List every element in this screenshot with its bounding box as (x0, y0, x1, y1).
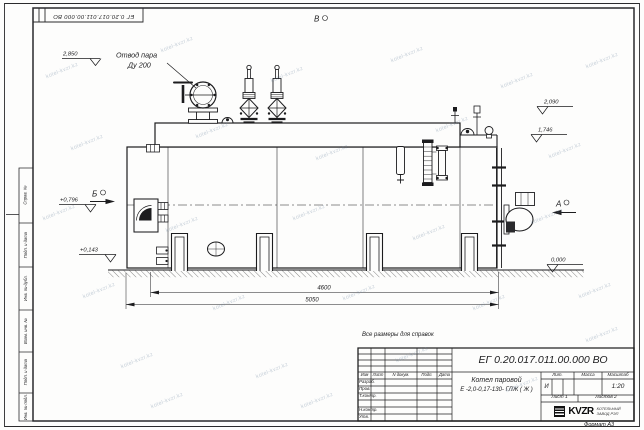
watermark-text: kotel-kvzr.kz (530, 208, 564, 226)
watermark-text: kotel-kvzr.kz (212, 294, 246, 312)
watermark-text: kotel-kvzr.kz (150, 392, 184, 410)
watermark-text: kotel-kvzr.kz (342, 284, 376, 302)
watermark-text: kotel-kvzr.kz (578, 282, 612, 300)
watermark-text: kotel-kvzr.kz (45, 62, 79, 80)
watermark-text: kotel-kvzr.kz (255, 362, 289, 380)
watermark-text: kotel-kvzr.kz (120, 352, 154, 370)
watermark-text: kotel-kvzr.kz (435, 116, 469, 134)
watermark-text: kotel-kvzr.kz (505, 376, 539, 394)
watermark-text: kotel-kvzr.kz (70, 134, 104, 152)
watermark-text: kotel-kvzr.kz (500, 72, 534, 90)
watermark-text: kotel-kvzr.kz (300, 392, 334, 410)
watermark-text: kotel-kvzr.kz (195, 122, 229, 140)
watermark-text: kotel-kvzr.kz (472, 294, 506, 312)
watermark-text: kotel-kvzr.kz (585, 52, 619, 70)
drawing-sheet: 4600 5050 2,850 2,090 1,746 +0,796 +0,14… (0, 0, 644, 430)
watermark-text: kotel-kvzr.kz (292, 204, 326, 222)
watermark-text: kotel-kvzr.kz (165, 216, 199, 234)
watermark-text: kotel-kvzr.kz (270, 66, 304, 84)
watermark-text: kotel-kvzr.kz (42, 204, 76, 222)
watermark-text: kotel-kvzr.kz (82, 282, 116, 300)
watermark-text: kotel-kvzr.kz (395, 346, 429, 364)
watermark-text: kotel-kvzr.kz (412, 224, 446, 242)
watermark-text: kotel-kvzr.kz (390, 46, 424, 64)
watermark-text: kotel-kvzr.kz (160, 36, 194, 54)
watermark-text: kotel-kvzr.kz (585, 326, 619, 344)
watermark-text: kotel-kvzr.kz (548, 142, 582, 160)
watermark-layer: kotel-kvzr.kzkotel-kvzr.kzkotel-kvzr.kzk… (0, 0, 644, 430)
watermark-text: kotel-kvzr.kz (315, 144, 349, 162)
